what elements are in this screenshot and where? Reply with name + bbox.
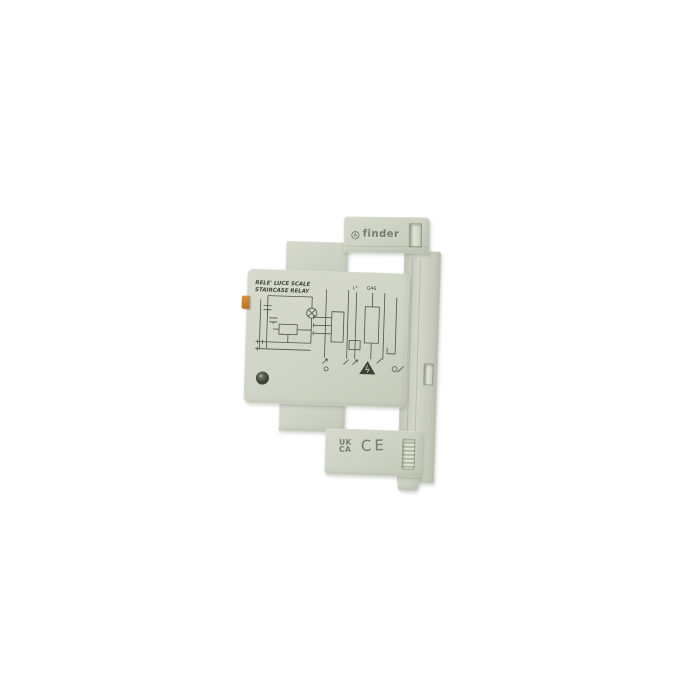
side-slot (423, 363, 434, 385)
marking-g46: G46 (367, 286, 377, 292)
mold-seam (346, 246, 428, 248)
product-photo: finder RELE' LUCE SCALE (0, 0, 700, 700)
ce-mark: CE (361, 436, 388, 455)
main-label-block: RELE' LUCE SCALE STAIRCASE RELAY L* G46 (244, 269, 410, 408)
finder-roundel-icon (256, 371, 269, 384)
label-title-line2: STAIRCASE RELAY (255, 287, 310, 295)
brand-logo: finder (351, 230, 400, 241)
top-slot (409, 223, 422, 247)
wiring-diagram-label: RELE' LUCE SCALE STAIRCASE RELAY L* G46 (247, 272, 407, 405)
ukca-mark: UK CA (339, 439, 352, 453)
top-terminal-block: finder (344, 217, 430, 254)
ukca-line2: CA (339, 446, 352, 453)
relay-device: finder RELE' LUCE SCALE (235, 210, 444, 498)
wiring-diagram: RELE' LUCE SCALE STAIRCASE RELAY L* G46 (247, 272, 407, 405)
marking-l-star: L* (353, 285, 359, 291)
orange-adjuster-tab (241, 296, 249, 309)
bottom-terminal-block: UK CA CE (324, 428, 422, 477)
lamp-terminal-icon (392, 367, 397, 372)
ribbed-vent (401, 439, 415, 470)
brand-logo-text: finder (363, 230, 400, 240)
finder-logo-icon (351, 230, 360, 239)
circuit-lines (255, 287, 406, 373)
